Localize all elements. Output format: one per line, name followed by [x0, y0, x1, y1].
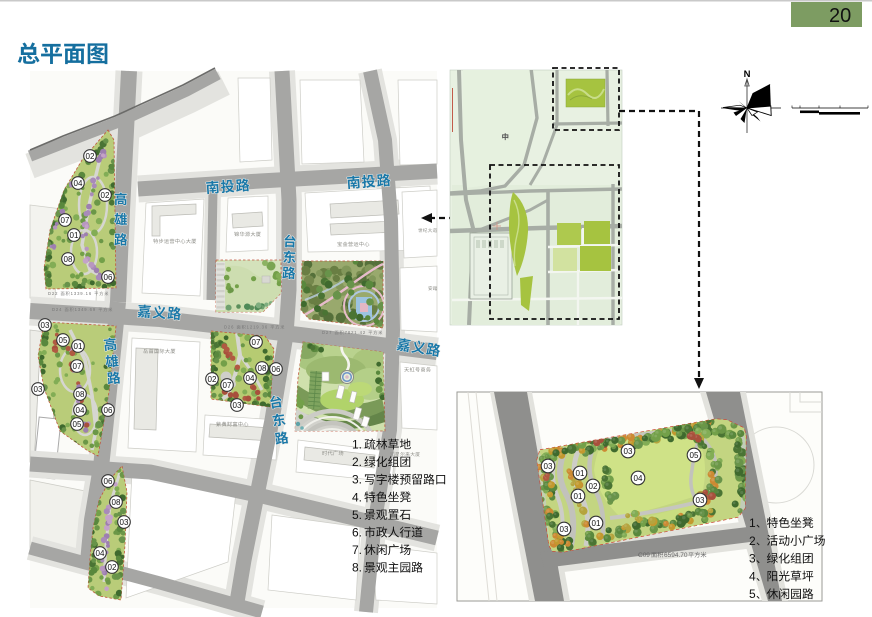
- svg-text:08: 08: [112, 498, 121, 507]
- svg-text:8.: 8.: [352, 561, 362, 575]
- svg-text:06: 06: [272, 365, 281, 374]
- svg-text:07: 07: [252, 338, 261, 347]
- svg-text:07: 07: [223, 381, 232, 390]
- svg-text:04: 04: [96, 549, 105, 558]
- svg-text:08: 08: [258, 364, 267, 373]
- svg-text:D27 面积7821.42 平方米: D27 面积7821.42 平方米: [322, 329, 383, 336]
- svg-text:4.: 4.: [352, 490, 362, 504]
- svg-text:05: 05: [59, 336, 68, 345]
- svg-text:20: 20: [829, 5, 851, 27]
- svg-text:D22 面积1339.16 平方米: D22 面积1339.16 平方米: [48, 290, 109, 297]
- svg-text:3.: 3.: [352, 473, 362, 487]
- svg-text:3: 3: [749, 552, 756, 566]
- svg-text:03: 03: [34, 385, 43, 394]
- svg-text:1: 1: [749, 516, 756, 530]
- svg-text:C09: C09: [638, 552, 650, 559]
- svg-text:08: 08: [64, 255, 73, 264]
- svg-text:04: 04: [246, 374, 255, 383]
- svg-text:02: 02: [589, 482, 598, 491]
- svg-text:03: 03: [560, 525, 569, 534]
- svg-text:6594.70: 6594.70: [664, 552, 688, 559]
- svg-text:03: 03: [120, 518, 129, 527]
- svg-text:D26 面积1219.36 平方米: D26 面积1219.36 平方米: [224, 324, 285, 331]
- svg-text:2: 2: [749, 534, 756, 548]
- svg-text:2.: 2.: [352, 455, 362, 469]
- svg-text:01: 01: [70, 231, 79, 240]
- svg-text:03: 03: [41, 321, 50, 330]
- svg-text:1.: 1.: [352, 438, 362, 452]
- svg-text:01: 01: [574, 492, 583, 501]
- svg-text:03: 03: [233, 401, 242, 410]
- svg-text:07: 07: [73, 362, 82, 371]
- svg-text:04: 04: [634, 474, 643, 483]
- svg-text:01: 01: [74, 342, 83, 351]
- svg-text:01: 01: [592, 519, 601, 528]
- svg-text:5: 5: [749, 587, 756, 601]
- svg-text:08: 08: [76, 390, 85, 399]
- svg-text:03: 03: [624, 447, 633, 456]
- svg-text:03: 03: [696, 496, 705, 505]
- svg-text:02: 02: [108, 563, 117, 572]
- svg-text:03: 03: [544, 462, 553, 471]
- svg-text:5.: 5.: [352, 508, 362, 522]
- svg-text:02: 02: [86, 152, 95, 161]
- svg-text:06: 06: [104, 273, 113, 282]
- svg-text:6.: 6.: [352, 526, 362, 540]
- svg-text:02: 02: [101, 191, 110, 200]
- svg-text:05: 05: [690, 451, 699, 460]
- svg-text:04: 04: [76, 406, 85, 415]
- svg-text:02: 02: [208, 375, 217, 384]
- svg-text:06: 06: [104, 477, 113, 486]
- svg-text:4: 4: [749, 569, 756, 583]
- svg-text:06: 06: [104, 406, 113, 415]
- svg-text:D24 面积1349.69 平方米: D24 面积1349.69 平方米: [52, 306, 113, 313]
- svg-text:7.: 7.: [352, 543, 362, 557]
- svg-text:01: 01: [576, 469, 585, 478]
- svg-text:05: 05: [73, 420, 82, 429]
- svg-text:07: 07: [61, 216, 70, 225]
- svg-text:04: 04: [74, 179, 83, 188]
